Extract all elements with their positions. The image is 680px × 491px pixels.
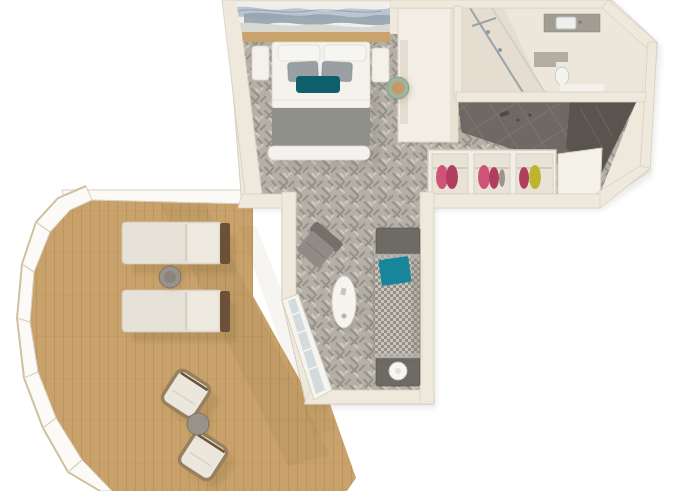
headboard-wall-strip xyxy=(242,32,390,42)
sun-lounger xyxy=(122,222,230,264)
wall-artwork xyxy=(232,0,392,36)
wall-living-left xyxy=(282,192,296,300)
lounger-frame xyxy=(220,223,230,264)
wall-top xyxy=(390,0,612,8)
lounger-frame xyxy=(220,291,230,332)
faucet xyxy=(578,20,581,23)
nightstand-right xyxy=(372,48,389,82)
double-bed xyxy=(268,42,370,160)
bed-foot-blanket xyxy=(272,108,370,146)
table-lamp xyxy=(389,362,407,380)
toilet xyxy=(555,62,569,85)
wall-bath-divider xyxy=(454,6,462,96)
nightstand-left xyxy=(252,46,269,80)
floor-plan-canvas xyxy=(0,0,680,491)
bed-bench xyxy=(268,146,370,160)
sofa xyxy=(374,254,420,358)
sun-lounger xyxy=(122,290,230,332)
pillow-teal-accent xyxy=(296,76,340,93)
closet-unit xyxy=(398,8,458,142)
wall-living-right xyxy=(420,192,434,404)
pillow-white xyxy=(324,45,366,61)
sofa-teal-throw xyxy=(378,256,411,286)
vanity-sink xyxy=(556,17,576,29)
entry-door-mat xyxy=(558,148,602,196)
wall-bath-bottom xyxy=(456,92,646,102)
pillow-white xyxy=(278,45,320,61)
floor-plan-svg xyxy=(0,0,680,491)
side-table-top xyxy=(376,228,420,256)
wall-hall-bottom xyxy=(424,194,600,208)
wardrobe xyxy=(428,150,556,198)
